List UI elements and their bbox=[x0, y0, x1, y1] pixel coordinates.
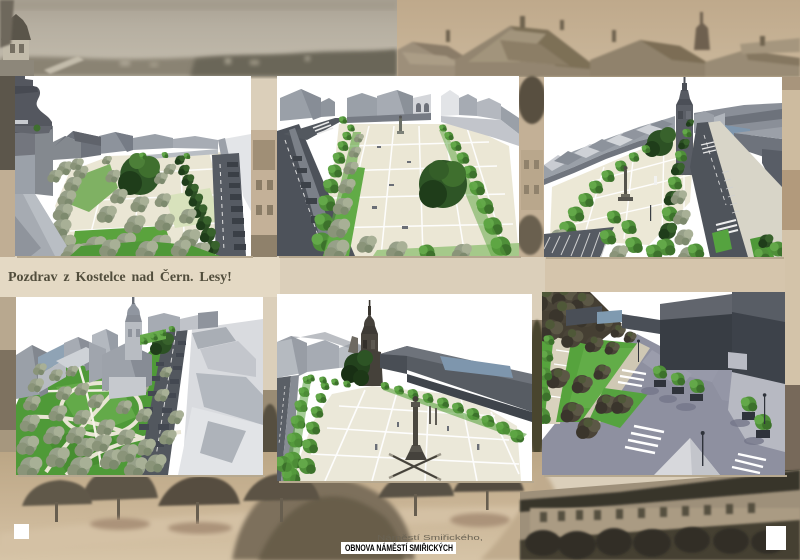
svg-text:Náměstí Smiřického,: Náměstí Smiřického, bbox=[377, 535, 483, 542]
svg-text:OBNOVA NÁMĚSTÍ SMIŘICKÝCH: OBNOVA NÁMĚSTÍ SMIŘICKÝCH bbox=[345, 542, 453, 553]
svg-text:Pozdrav z Kostelce nad Čern. L: Pozdrav z Kostelce nad Čern. Lesy! bbox=[8, 268, 232, 285]
